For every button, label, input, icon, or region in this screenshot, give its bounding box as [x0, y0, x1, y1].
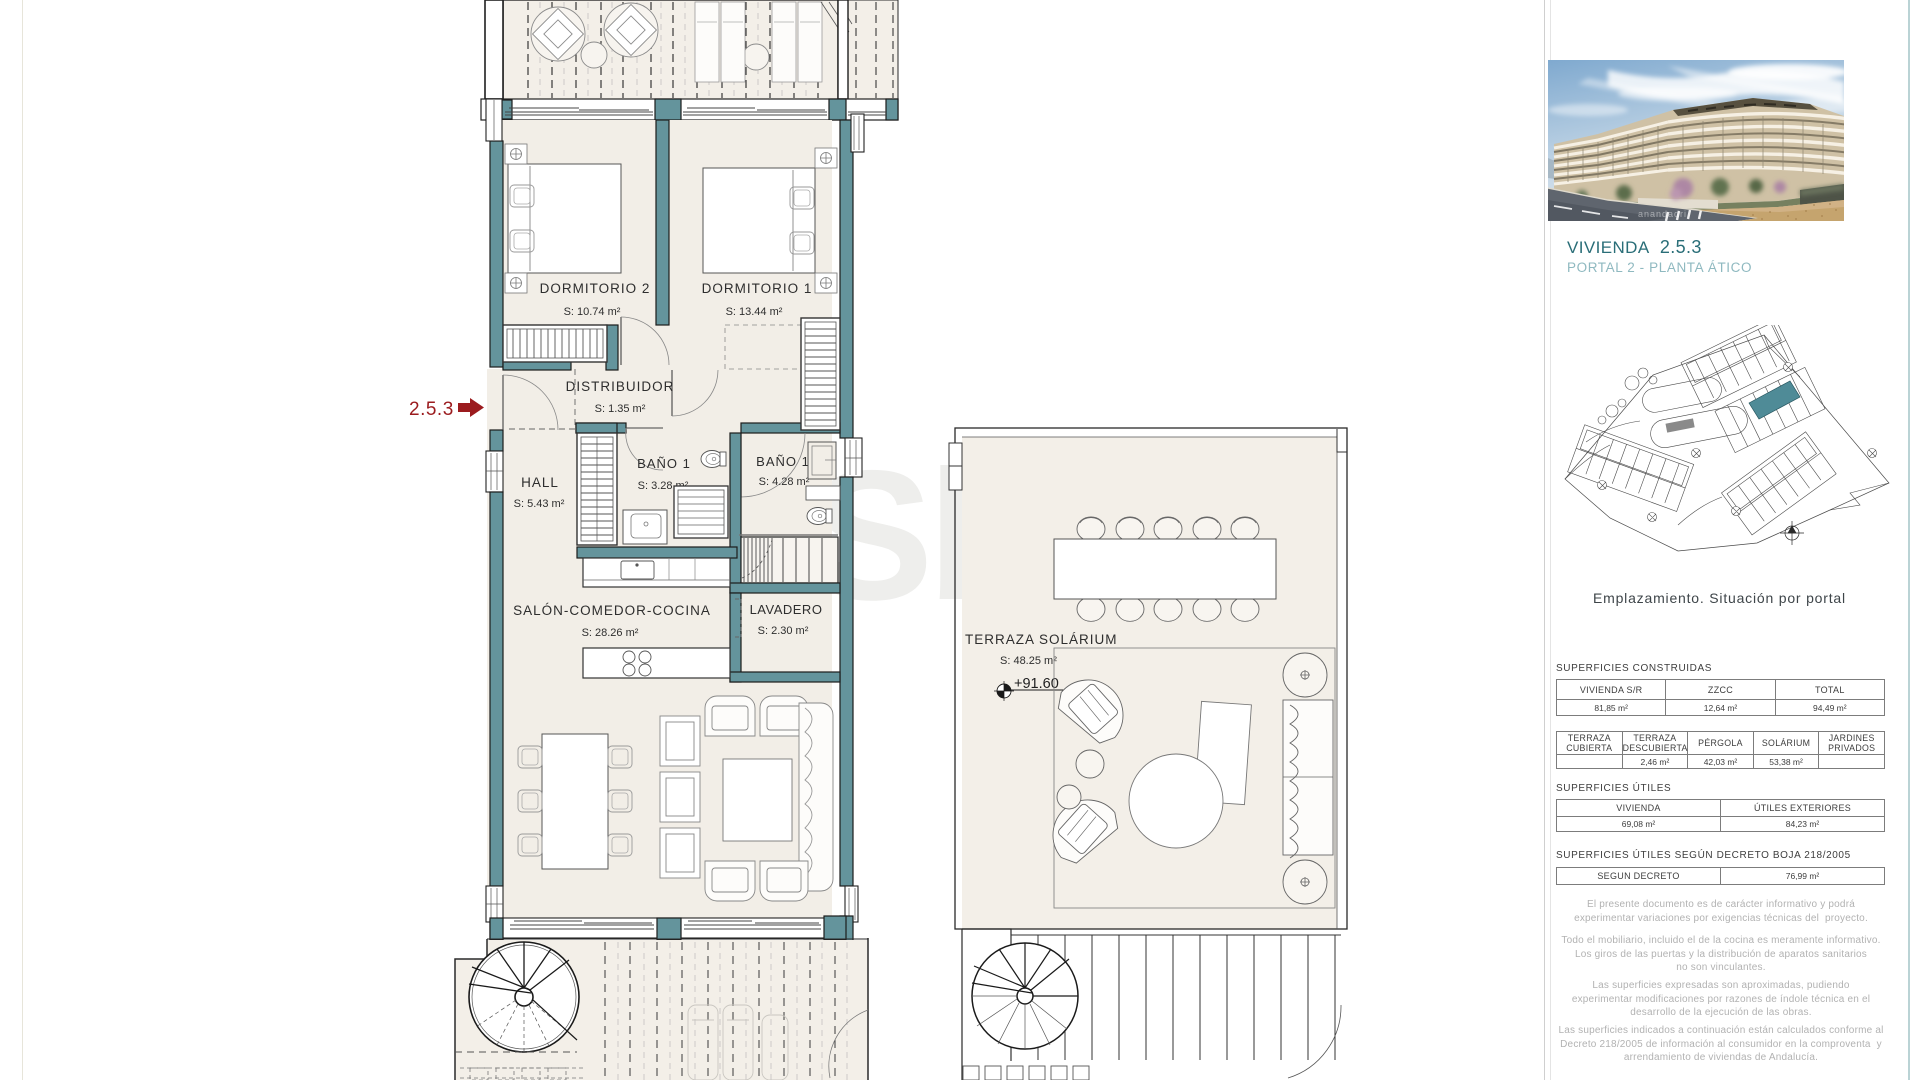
svg-text:TERRAZA SOLÁRIUM: TERRAZA SOLÁRIUM — [965, 632, 1118, 647]
svg-text:DORMITORIO 2: DORMITORIO 2 — [540, 281, 651, 296]
svg-text:S: 1.35 m²: S: 1.35 m² — [595, 403, 646, 415]
svg-text:2.5.3: 2.5.3 — [409, 399, 454, 420]
svg-text:S: 13.44 m²: S: 13.44 m² — [726, 306, 783, 318]
svg-text:DISTRIBUIDOR: DISTRIBUIDOR — [566, 379, 675, 394]
svg-text:SALÓN-COMEDOR-COCINA: SALÓN-COMEDOR-COCINA — [513, 603, 711, 618]
svg-text:S: 5.43 m²: S: 5.43 m² — [514, 498, 565, 510]
svg-text:LAVADERO: LAVADERO — [750, 602, 823, 617]
svg-text:BAÑO 1: BAÑO 1 — [756, 454, 810, 469]
svg-text:BAÑO 1: BAÑO 1 — [637, 456, 691, 471]
svg-text:S: 48.25 m²: S: 48.25 m² — [1000, 655, 1057, 667]
svg-text:S: 10.74 m²: S: 10.74 m² — [564, 306, 621, 318]
svg-text:DORMITORIO 1: DORMITORIO 1 — [702, 281, 813, 296]
svg-text:HALL: HALL — [521, 475, 559, 490]
svg-text:S: 2.30 m²: S: 2.30 m² — [758, 625, 809, 637]
svg-text:S: 28.26 m²: S: 28.26 m² — [582, 627, 639, 639]
svg-text:S: 4.28 m²: S: 4.28 m² — [759, 476, 810, 488]
svg-text:anandadri: anandadri — [1638, 209, 1687, 219]
